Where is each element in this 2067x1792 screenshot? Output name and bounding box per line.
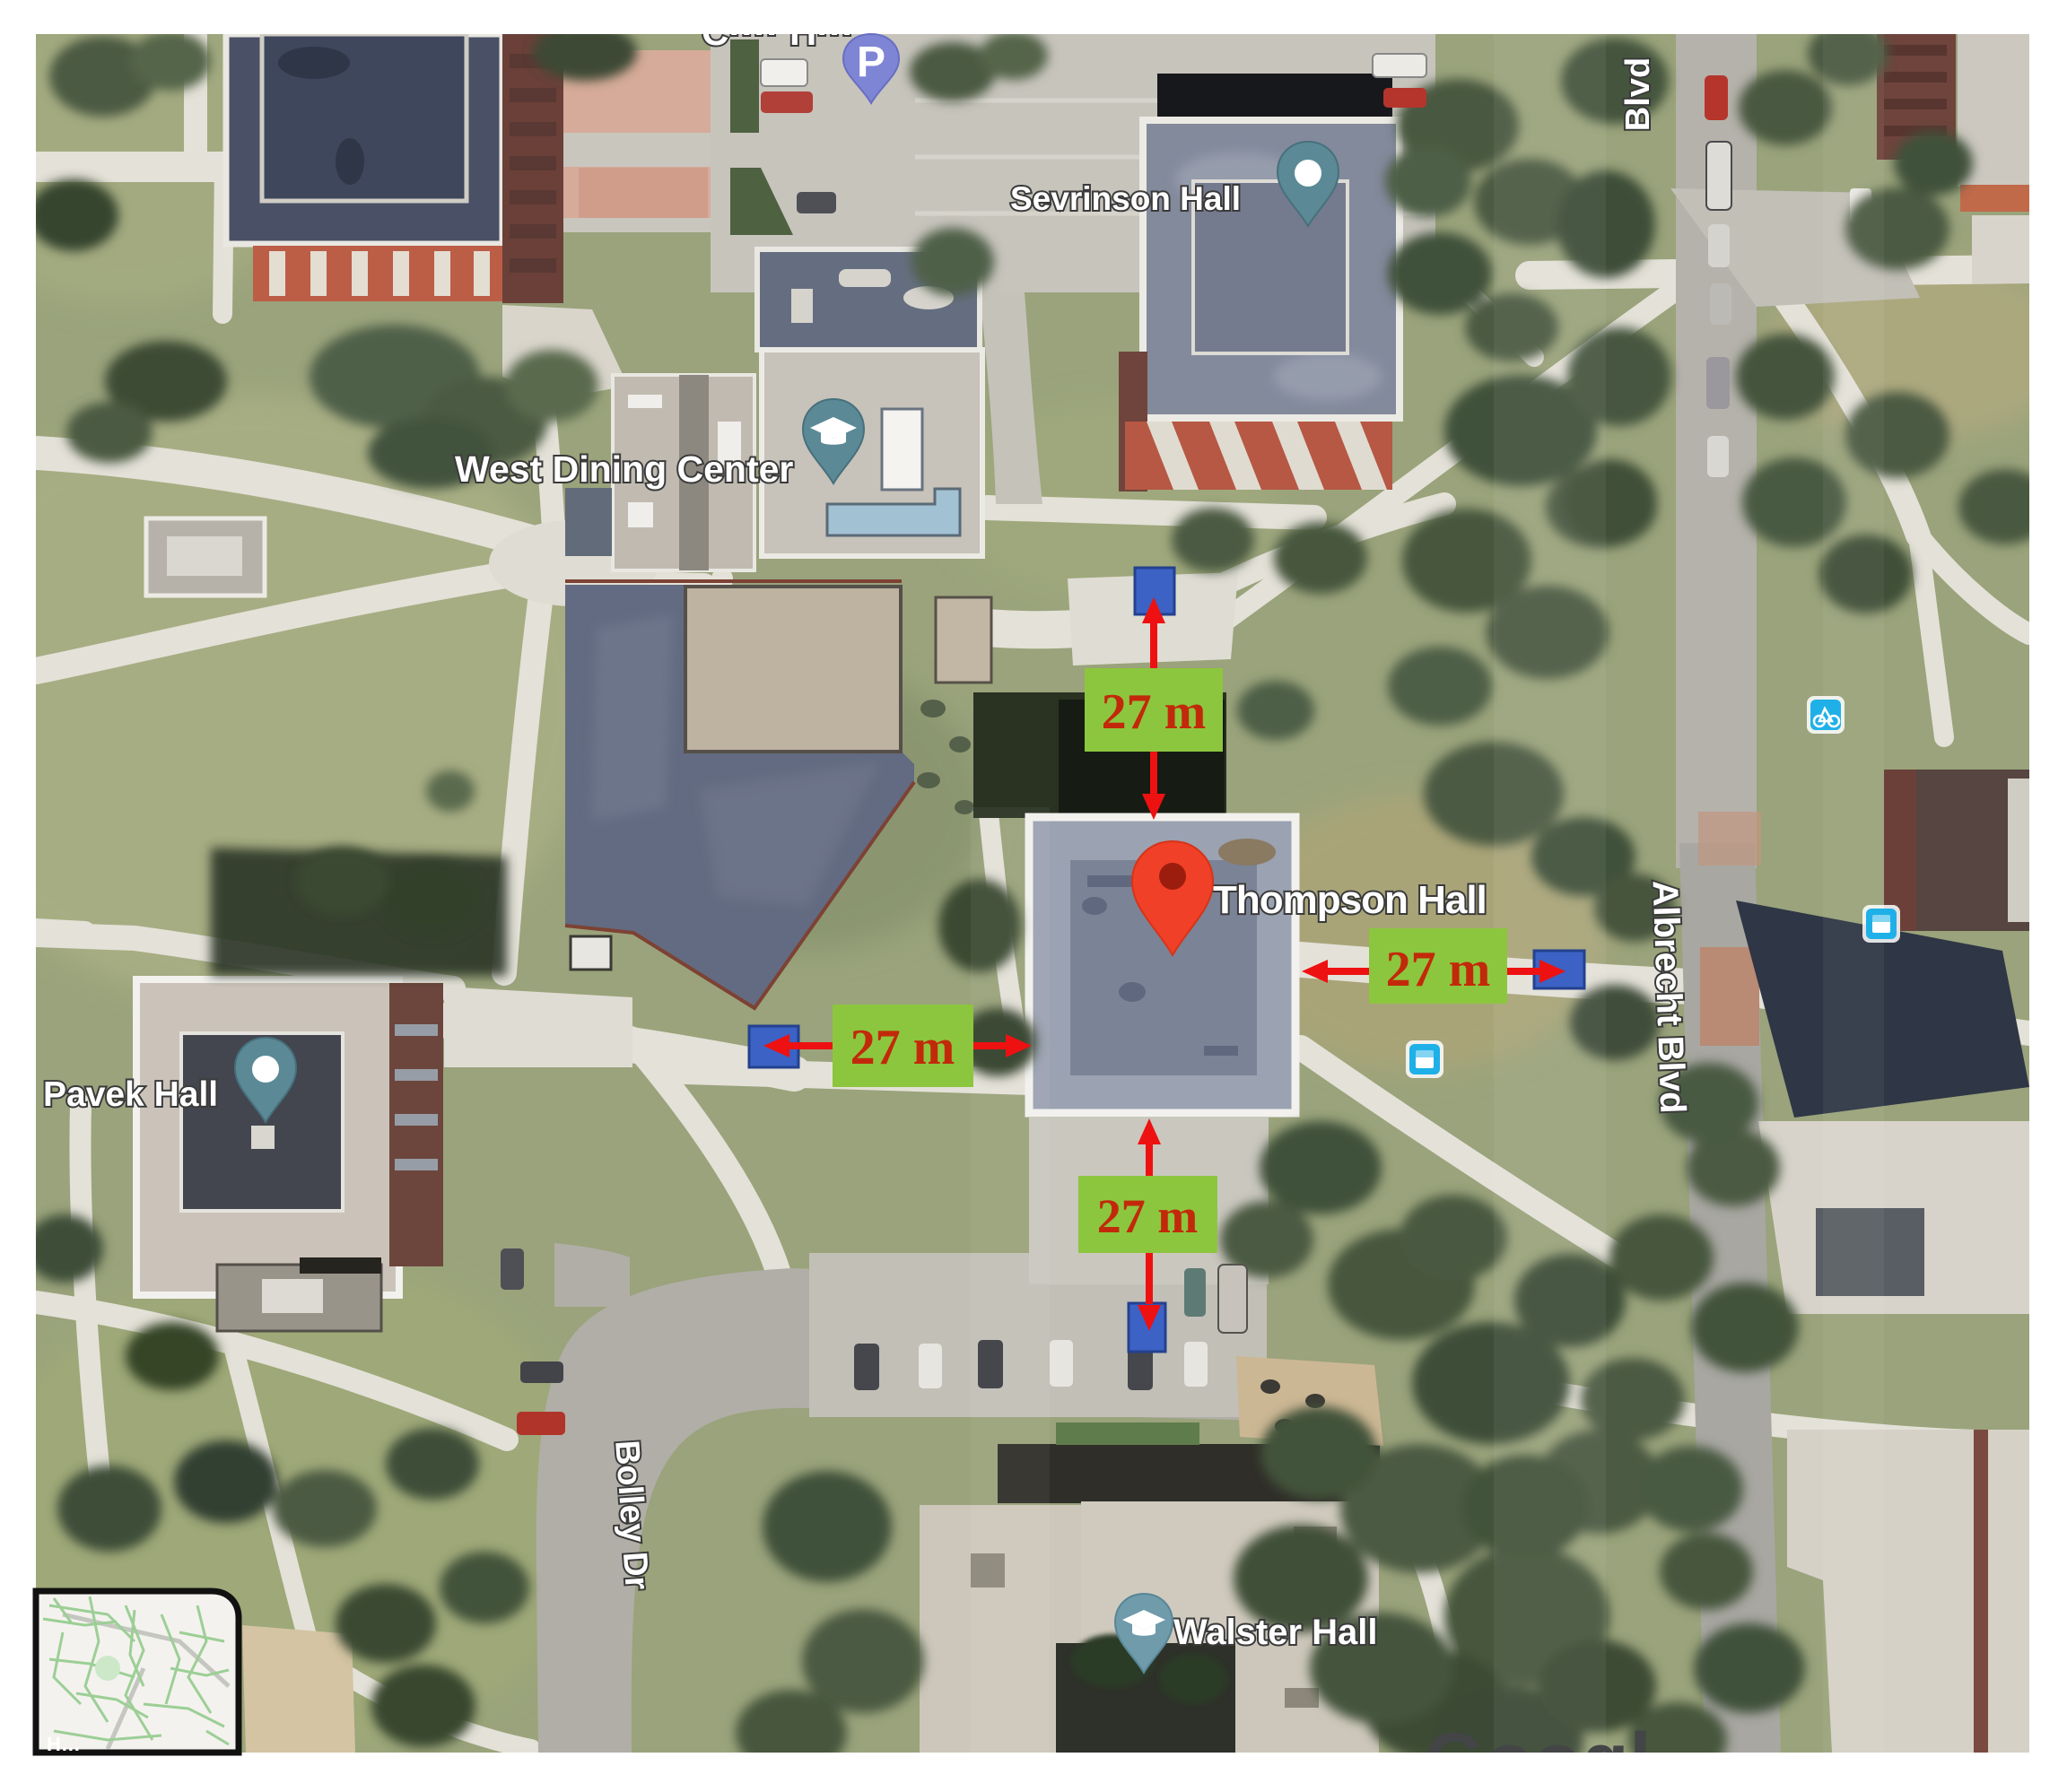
svg-text:27 m: 27 m (850, 1020, 955, 1075)
svg-text:Sevrinson Hall: Sevrinson Hall (1010, 180, 1241, 217)
svg-text:27 m: 27 m (1097, 1189, 1199, 1243)
svg-text:Pavek Hall: Pavek Hall (43, 1075, 218, 1114)
svg-text:Thompson Hall: Thompson Hall (1213, 878, 1487, 922)
svg-text:Blvd: Blvd (1619, 57, 1657, 131)
svg-text:27 m: 27 m (1386, 942, 1491, 997)
svg-text:Walster Hall: Walster Hall (1173, 1613, 1377, 1652)
svg-text:H…: H… (47, 1733, 81, 1755)
svg-text:P: P (857, 39, 885, 86)
svg-text:Albrecht Blvd: Albrecht Blvd (1644, 880, 1692, 1114)
svg-text:West Dining Center: West Dining Center (455, 448, 793, 490)
svg-text:27 m: 27 m (1102, 684, 1207, 740)
